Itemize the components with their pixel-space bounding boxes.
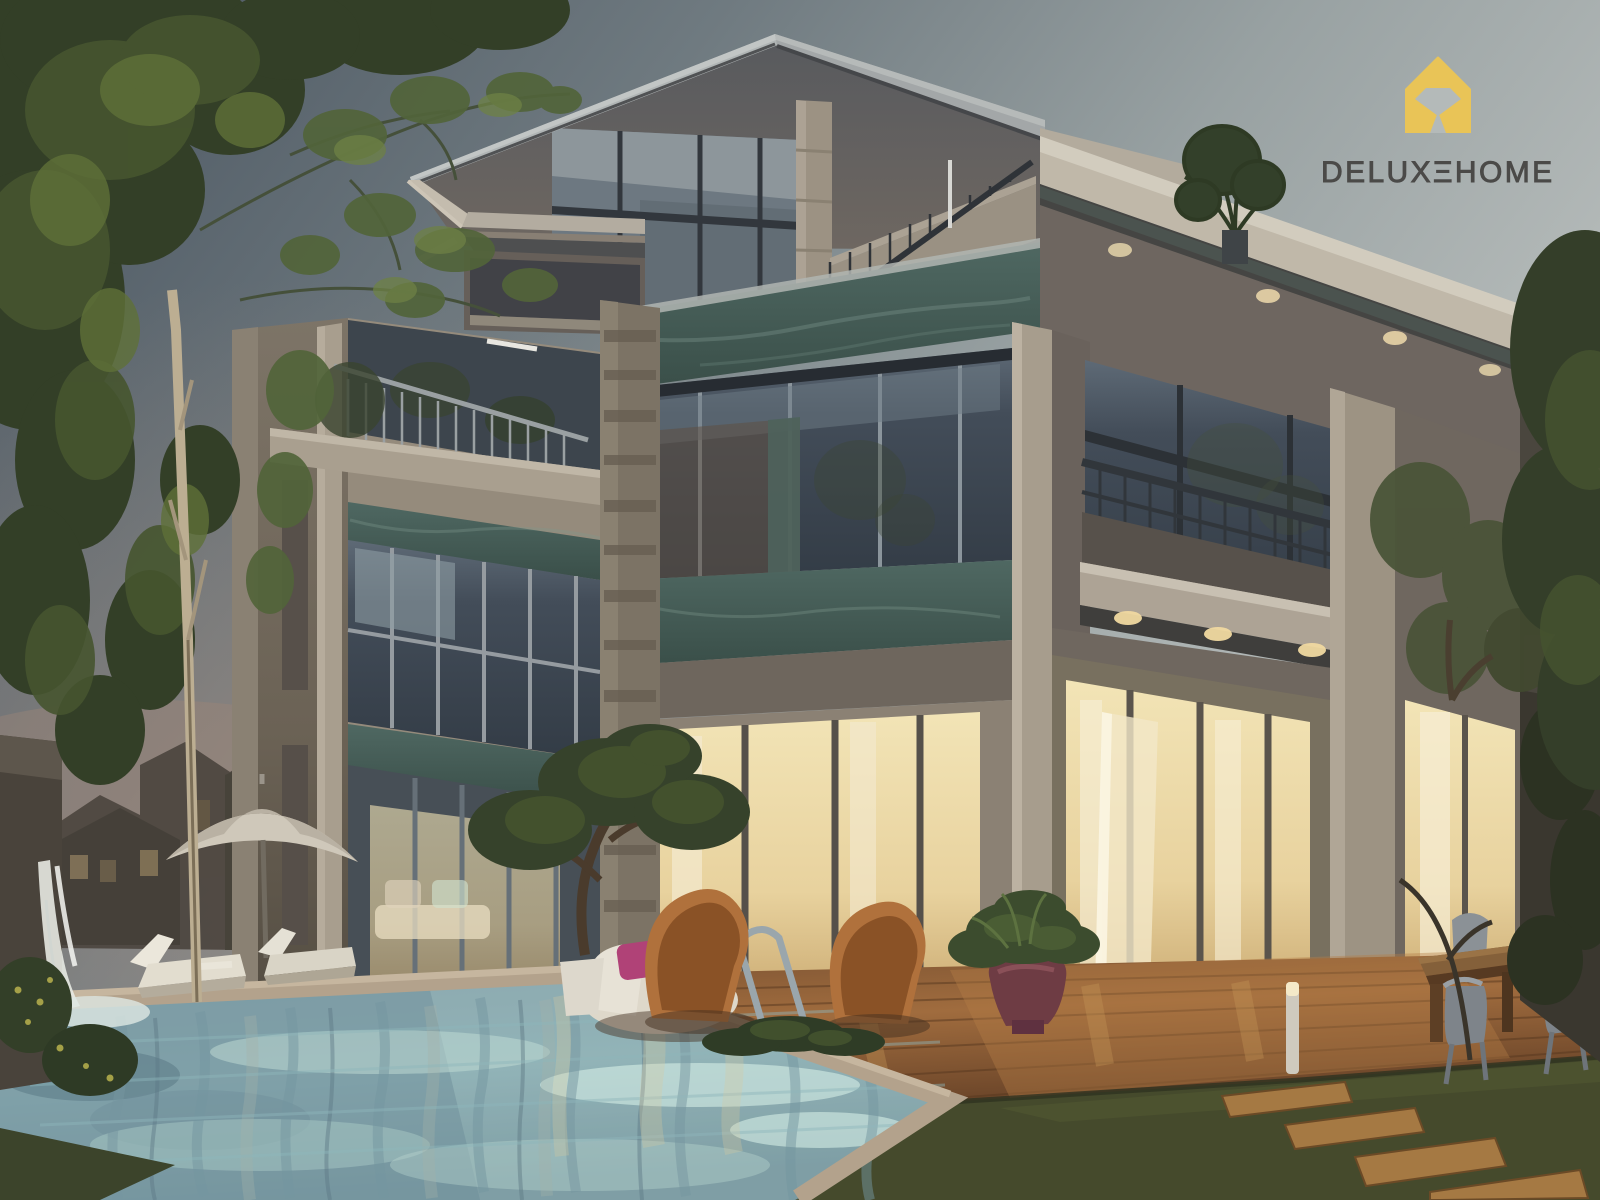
svg-text:DELUXΞHOME: DELUXΞHOME bbox=[1321, 156, 1555, 189]
